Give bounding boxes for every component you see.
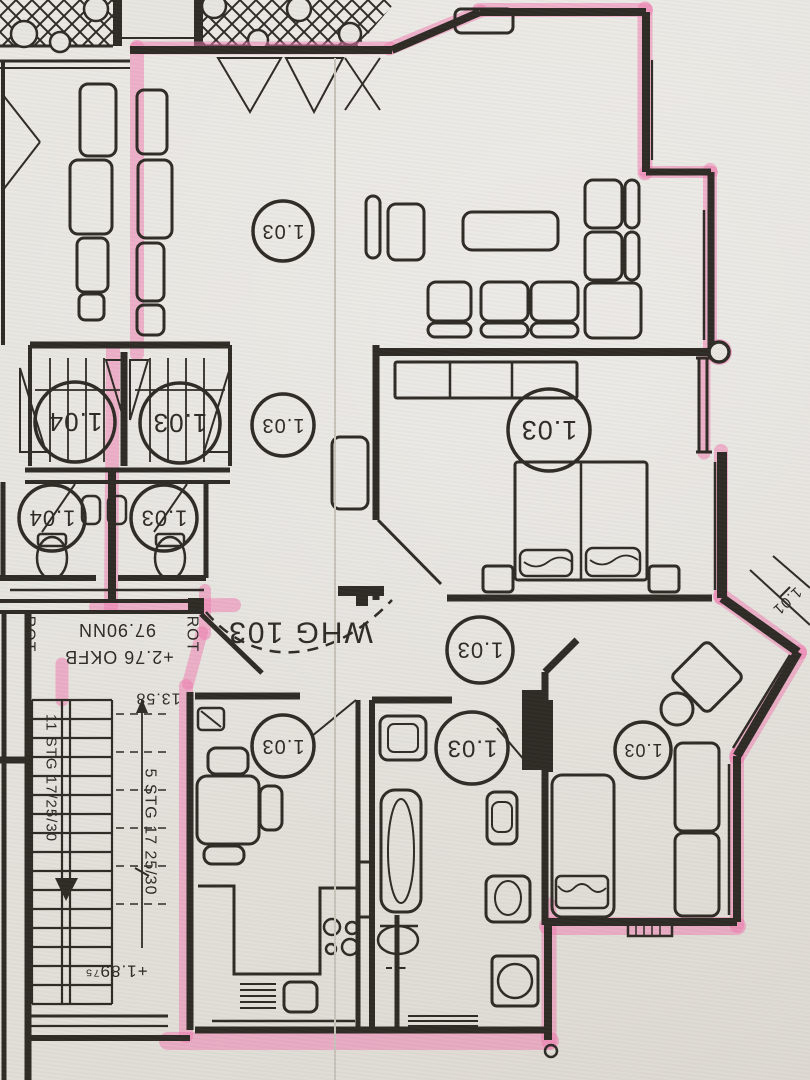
room-label-text: 1.03 [447,735,498,762]
annotation-dim-13-58: 13.58 [135,690,180,707]
annotation-level-1-89: +1.89⁷⁵ [84,962,147,981]
room-label: 1.03 [615,722,671,778]
hatch-circle [287,0,311,21]
door-swing-marks [3,58,380,452]
wall-segment [392,12,480,50]
room-label-text: 1.03 [457,638,504,663]
pink-highlight-stroke [96,605,234,607]
wall-segment [545,640,577,672]
room-label: 1.03 [436,712,508,784]
room-label: 1.03 [252,394,314,456]
annotation-rot-right: ROT [184,616,201,653]
room-label-text: 1.03 [262,414,305,436]
room-label: 1.04 [19,485,85,551]
room-label: 1.03 [140,383,220,463]
room-label: 1.03 [252,715,314,777]
wall-segment [737,652,798,756]
room-label-text: 1.03 [262,220,305,242]
room-label: 1.03 [447,617,513,683]
room-label: 1.03 [131,485,197,551]
hatch-circle [11,21,37,47]
walls [0,12,810,1080]
column-symbol [709,342,729,362]
annotation-level-2-76: +2.76 OKFB [64,647,174,667]
room-label-text: 1.03 [521,415,578,445]
room-label-text: 1.03 [623,740,662,760]
room-label-text: 1.03 [141,506,188,531]
wall-segment [733,655,790,748]
room-label-text: 1.04 [48,407,103,437]
annotation-stairs-5: 5 STG 17 25/30 [142,769,159,896]
annotation-apartment-number: WHG 103 [227,616,373,649]
floor-plan-drawing: 1.031.041.031.031.031.041.031.031.031.03… [0,0,810,1080]
hatch-circle [202,0,226,18]
room-label: 1.03 [508,389,590,471]
annotation-level-97-90: 97.90NN [78,620,156,640]
room-label: 1.04 [35,382,115,462]
annotation-rot-left: ROT [21,616,38,653]
room-label-text: 1.03 [262,735,305,757]
wall-segment [378,520,441,584]
room-label: 1.03 [253,201,313,261]
room-label-text: 1.04 [29,506,76,531]
hatch-circle [84,0,108,21]
wall-segment [773,556,810,588]
hatch-circle [50,32,70,52]
room-label-text: 1.03 [153,408,208,438]
annotation-stairs-11: 11 STG 17/25/30 [43,714,60,842]
floor-plan-photo: 1.031.041.031.031.031.041.031.031.031.03… [0,0,810,1080]
